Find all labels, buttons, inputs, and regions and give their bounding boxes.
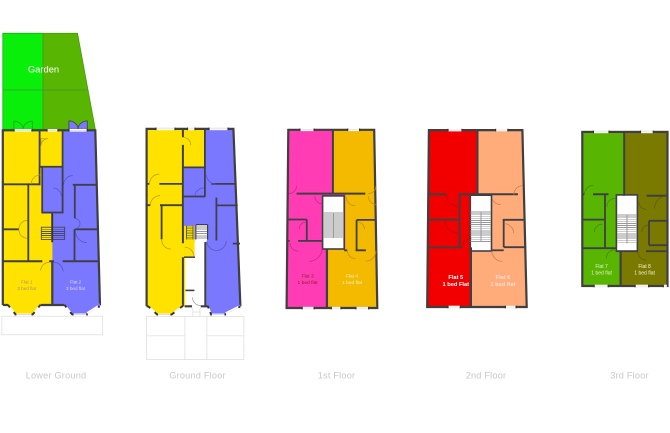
svg-text:Lower Ground: Lower Ground (26, 371, 87, 381)
svg-text:3 bed flat: 3 bed flat (17, 286, 37, 291)
svg-text:2nd Floor: 2nd Floor (466, 371, 507, 381)
svg-text:Flat 3: Flat 3 (301, 274, 314, 280)
svg-text:Flat 7: Flat 7 (595, 264, 608, 270)
svg-text:Garden: Garden (28, 64, 59, 75)
svg-text:1 bed flat: 1 bed flat (591, 270, 612, 276)
svg-text:1 bed flat: 1 bed flat (490, 282, 515, 288)
svg-text:1 bed flat: 1 bed flat (342, 280, 363, 286)
svg-text:Flat 5: Flat 5 (448, 275, 463, 281)
svg-text:1 bed flat: 1 bed flat (634, 270, 655, 276)
svg-text:3 bed flat: 3 bed flat (66, 286, 86, 291)
svg-text:Flat 6: Flat 6 (495, 275, 510, 281)
svg-text:Flat 8: Flat 8 (638, 264, 651, 270)
svg-text:3rd Floor: 3rd Floor (610, 371, 649, 381)
svg-text:Flat 1: Flat 1 (21, 279, 33, 284)
svg-text:Flat 2: Flat 2 (70, 279, 82, 284)
svg-text:1st Floor: 1st Floor (318, 371, 356, 381)
svg-text:Ground Floor: Ground Floor (169, 371, 226, 381)
svg-text:Flat 4: Flat 4 (346, 274, 359, 280)
svg-text:1 bed flat: 1 bed flat (298, 280, 319, 286)
svg-text:1 bed Flat: 1 bed Flat (443, 282, 470, 288)
